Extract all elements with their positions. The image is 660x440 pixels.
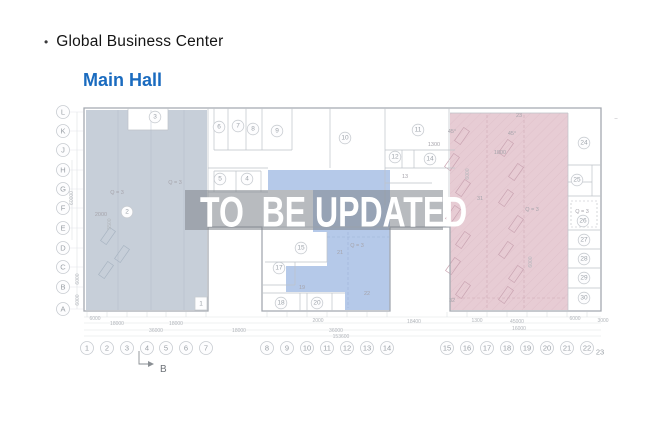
- room-number: 7: [236, 123, 240, 130]
- room-number: 10: [341, 135, 349, 142]
- annotation-text: 23: [516, 113, 522, 119]
- section-marker-label: B: [160, 364, 167, 375]
- room-number: 26: [579, 218, 587, 225]
- page-header: • Global Business Center: [44, 33, 223, 51]
- room-number: 4: [245, 176, 249, 183]
- room-number: 20: [313, 300, 321, 307]
- col-axis-label: 2: [105, 344, 109, 353]
- dimension-label: 6000: [75, 273, 81, 284]
- room-number: 14: [426, 156, 434, 163]
- room-number: 11: [415, 127, 422, 134]
- room-number: 27: [580, 237, 588, 244]
- room-number: 3: [153, 114, 157, 121]
- left-zone-notch: [128, 108, 168, 130]
- room-number: 30: [580, 295, 588, 302]
- room-number: 18: [277, 300, 285, 307]
- dimension-label: 18000: [110, 321, 124, 327]
- hall-subtitle: Main Hall: [83, 70, 162, 91]
- col-axis-label: 15: [443, 344, 451, 353]
- row-axis-label: G: [60, 185, 66, 194]
- row-axis-label: K: [60, 127, 65, 136]
- annotation-text: 31: [477, 196, 483, 202]
- dimension-label: 36000: [149, 328, 163, 334]
- annotation-text: Q = 3: [110, 190, 124, 196]
- room-number: 6: [217, 124, 221, 131]
- room-number: 25: [573, 177, 581, 184]
- annotation-text: 45°: [448, 129, 456, 135]
- annotation-text: Q = 3: [350, 243, 364, 249]
- row-axis-label: F: [61, 204, 66, 213]
- col-axis-label: 21: [563, 344, 571, 353]
- annotation-text: 13: [402, 174, 408, 180]
- dimension-label: 45000: [510, 319, 524, 325]
- dimension-label: 153600: [333, 334, 350, 340]
- col-axis-label: 8: [265, 344, 269, 353]
- row-axis-label: E: [60, 224, 65, 233]
- col-axis-label: 10: [303, 344, 311, 353]
- room-number: 5: [218, 176, 222, 183]
- dimension-label: 18400: [407, 319, 421, 325]
- annotation-text: 22: [364, 291, 370, 297]
- annotation-text: –: [614, 116, 618, 122]
- col-axis-label: 14: [383, 344, 391, 353]
- annotation-text: 21: [337, 250, 343, 256]
- col-axis-label: 22: [583, 344, 591, 353]
- page-title: Global Business Center: [56, 33, 223, 51]
- dimension-label: 6000: [569, 316, 580, 322]
- col-axis-label: 20: [543, 344, 551, 353]
- col-axis-label-end: 23: [596, 348, 604, 357]
- annotation-text: 19: [299, 285, 305, 291]
- row-axis-label: A: [60, 305, 65, 314]
- col-axis-label: 16: [463, 344, 471, 353]
- bullet-icon: •: [44, 33, 48, 51]
- annotation-text: Q = 3: [525, 207, 539, 213]
- room-number: 15: [297, 245, 305, 252]
- col-axis-label: 11: [323, 344, 331, 353]
- annotation-text: Q = 3: [575, 209, 589, 215]
- col-axis-label: 1: [85, 344, 89, 353]
- col-axis-label: 12: [343, 344, 351, 353]
- dimension-label: 18000: [169, 321, 183, 327]
- dimension-label: 3000: [597, 318, 608, 324]
- room-number: 24: [580, 140, 588, 147]
- col-axis-label: 4: [145, 344, 149, 353]
- room-number: 1: [199, 301, 203, 308]
- annotation-text: Q = 3: [168, 180, 182, 186]
- dimension-label: 6000: [89, 316, 100, 322]
- row-axis-label: H: [60, 166, 65, 175]
- dimension-label: 16000: [512, 326, 526, 332]
- dimension-label: 2000: [312, 318, 323, 324]
- watermark-text: TO BE UPDATED: [200, 188, 467, 237]
- section-arrow-icon: B: [139, 351, 167, 375]
- col-axis-label: 5: [164, 344, 168, 353]
- row-axis-label: C: [60, 263, 66, 272]
- annotation-text: 1300: [428, 142, 440, 148]
- annotation-text: 1800: [494, 150, 506, 156]
- dimension-label: 60000: [69, 191, 75, 205]
- row-axis-label: B: [60, 283, 65, 292]
- right-zone-hatch: [450, 113, 568, 310]
- row-axis-label: D: [60, 244, 66, 253]
- dimension-label: 18000: [232, 328, 246, 334]
- col-axis-label: 9: [285, 344, 289, 353]
- annotation-text: 32: [449, 298, 455, 304]
- annotation-text: 2000: [95, 212, 107, 218]
- col-axis-label: 18: [503, 344, 511, 353]
- annotation-text: 45°: [508, 131, 516, 137]
- dimension-label: 6000: [75, 294, 81, 305]
- col-axis-label: 17: [483, 344, 491, 353]
- room-number: 28: [580, 256, 588, 263]
- dimension-label: 1300: [471, 318, 482, 324]
- row-axis-label: L: [61, 108, 65, 117]
- dimension-label: 6000: [528, 256, 534, 267]
- room-number: 2: [125, 209, 129, 216]
- room-number: 9: [275, 128, 279, 135]
- dimension-label: 5500: [107, 218, 113, 229]
- row-axis-label: J: [61, 146, 65, 155]
- room-number: 12: [391, 154, 399, 161]
- room-number: 29: [580, 275, 588, 282]
- col-axis-label: 19: [523, 344, 531, 353]
- col-axis-label: 6: [184, 344, 188, 353]
- col-axis-label: 13: [363, 344, 371, 353]
- dimension-label: 6000: [465, 168, 471, 179]
- room-number: 8: [251, 126, 255, 133]
- col-axis-label: 3: [125, 344, 129, 353]
- col-axis-label: 7: [204, 344, 208, 353]
- room-number: 17: [275, 265, 283, 272]
